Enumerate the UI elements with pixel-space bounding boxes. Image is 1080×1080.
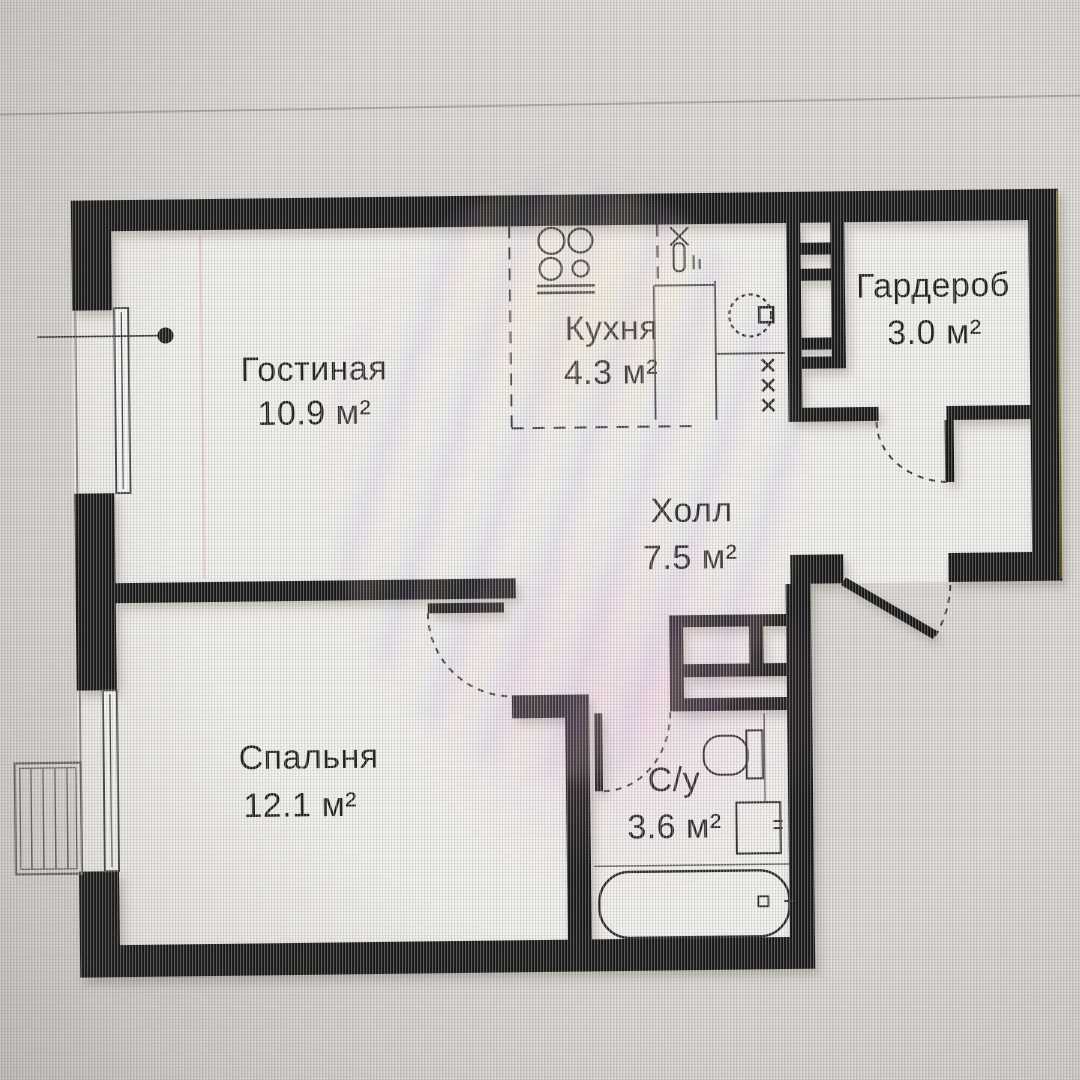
- room-area-kitchen: 4.3 м²: [564, 353, 659, 393]
- entrance-door-leaf: [844, 580, 936, 636]
- shaft-left-bar: [786, 223, 802, 422]
- floor-plan-svg: [0, 0, 1080, 1080]
- screen-photo: Гостиная 10.9 м² Кухня 4.3 м² Гардероб 3…: [0, 0, 1080, 1080]
- bath-shaft-left: [669, 615, 684, 711]
- wall-shaft-bottom: [788, 407, 878, 422]
- shaft-rung-4: [802, 356, 832, 368]
- room-label-kitchen: Кухня: [564, 309, 658, 349]
- wall-right: [1028, 189, 1063, 581]
- entrance-door-arc: [935, 583, 952, 636]
- room-area-wardrobe: 3.0 м²: [887, 313, 982, 353]
- balcony-icon: [15, 763, 82, 875]
- kitchen-dashed-sink: [657, 225, 658, 279]
- stove-front-line-1: [537, 285, 595, 286]
- balcony-rail-1: [31, 768, 32, 869]
- balcony-rail-4: [67, 768, 68, 869]
- wardrobe-door-leaf: [945, 420, 955, 482]
- floor-plan: Гостиная 10.9 м² Кухня 4.3 м² Гардероб 3…: [0, 0, 1080, 1080]
- stove-front-line-2: [537, 292, 595, 293]
- shaft-rung-2: [801, 268, 831, 280]
- room-area-bathroom: 3.6 м²: [627, 807, 722, 847]
- room-area-bedroom: 12.1 м²: [243, 786, 357, 826]
- bedroom-door-leaf: [428, 602, 504, 613]
- shaft-right-bar: [830, 222, 846, 368]
- wall-bedroom-corner-v: [565, 694, 592, 939]
- shaft-rung-3: [802, 337, 832, 349]
- bath-shaft-divider: [749, 614, 764, 675]
- wall-left-upper: [71, 200, 112, 310]
- room-label-living: Гостиная: [240, 349, 387, 390]
- bath-shaft-top: [669, 614, 791, 627]
- bath-shaft-middle: [670, 663, 792, 677]
- counter-line-4: [716, 353, 785, 354]
- bathroom-door-leaf: [594, 713, 603, 791]
- wall-wardrobe-bottom: [946, 405, 1030, 420]
- room-label-bathroom: С/у: [647, 761, 700, 801]
- counter-line-2: [654, 285, 715, 286]
- room-area-hall: 7.5 м²: [643, 538, 738, 578]
- shaft-rung-1: [800, 242, 830, 254]
- wall-entrance-stub: [790, 554, 843, 584]
- balcony-frame: [15, 763, 82, 875]
- room-label-hall: Холл: [650, 491, 733, 531]
- bath-shaft-bottom: [670, 697, 792, 711]
- balcony-rail-3: [55, 768, 56, 869]
- room-label-wardrobe: Гардероб: [856, 266, 1010, 307]
- wall-hall-southeast: [948, 552, 1062, 582]
- room-label-bedroom: Спальня: [238, 737, 379, 778]
- balcony-rail-2: [43, 768, 44, 869]
- room-area-living: 10.9 м²: [257, 394, 371, 434]
